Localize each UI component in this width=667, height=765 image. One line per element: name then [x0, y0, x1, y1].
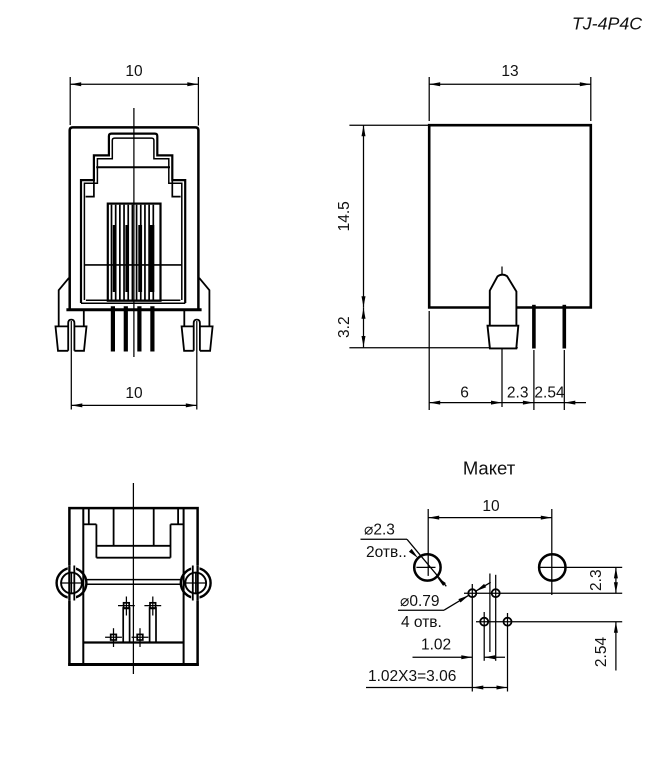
- svg-text:2.54: 2.54: [534, 384, 565, 401]
- svg-text:Макет: Макет: [463, 458, 516, 479]
- svg-text:⌀0.79: ⌀0.79: [400, 593, 440, 610]
- svg-text:2.3: 2.3: [507, 384, 529, 401]
- svg-text:1.02: 1.02: [421, 637, 451, 654]
- svg-text:4 отв.: 4 отв.: [401, 614, 442, 631]
- svg-text:3.2: 3.2: [336, 316, 353, 338]
- svg-text:13: 13: [501, 63, 518, 80]
- svg-text:2отв..: 2отв..: [366, 544, 407, 561]
- svg-text:2.54: 2.54: [593, 637, 610, 668]
- svg-text:14.5: 14.5: [336, 201, 353, 231]
- svg-text:10: 10: [125, 63, 143, 80]
- svg-text:2.3: 2.3: [588, 569, 605, 591]
- svg-text:10: 10: [482, 498, 500, 515]
- svg-text:1.02X3=3.06: 1.02X3=3.06: [368, 668, 456, 685]
- svg-text:TJ-4P4C: TJ-4P4C: [572, 14, 642, 34]
- svg-text:6: 6: [460, 384, 469, 401]
- svg-text:⌀2.3: ⌀2.3: [364, 522, 395, 539]
- svg-text:10: 10: [125, 385, 143, 402]
